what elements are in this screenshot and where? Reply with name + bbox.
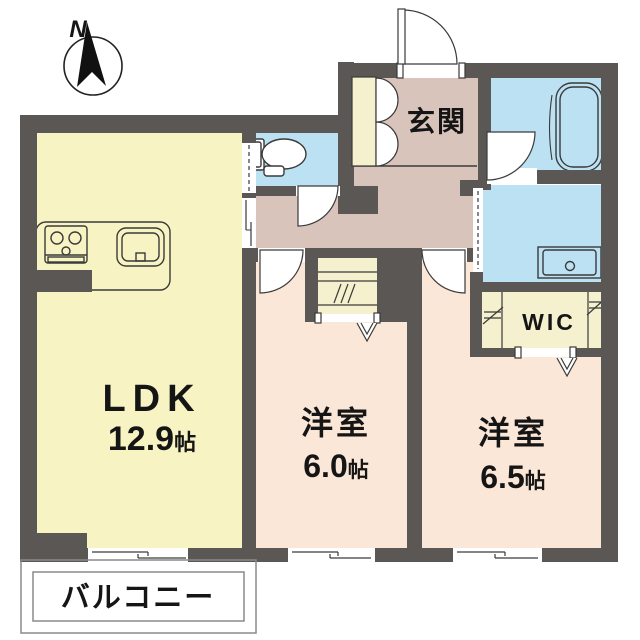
ldk-sliding-door-icon	[242, 198, 256, 248]
wall-segment	[338, 63, 397, 78]
wall-segment	[537, 170, 601, 184]
wall-segment	[20, 115, 37, 562]
washroom-sliding-door-icon	[473, 188, 483, 272]
bedroom-right-label: 洋室	[478, 415, 548, 451]
wall-segment	[338, 186, 378, 214]
wic-label: WIC	[522, 309, 576, 335]
wall-segment	[601, 63, 618, 562]
wall-segment	[305, 248, 318, 322]
wall-segment	[470, 348, 518, 357]
wall-segment	[242, 246, 256, 548]
wall-segment	[375, 548, 453, 562]
wall-segment	[20, 533, 87, 548]
genkan-label: 玄関	[407, 105, 467, 137]
wall-segment	[470, 282, 607, 292]
wall-segment	[20, 270, 92, 292]
bedroom-center-window-icon	[288, 548, 375, 562]
balcony-label: バルコニー	[61, 582, 215, 614]
floor-plan-canvas: N 玄関 LDK 12.9帖 洋室 6.0帖 洋室 6.5帖 WIC バルコニー	[0, 0, 640, 640]
washroom-floor	[483, 185, 601, 282]
ldk-floor	[37, 133, 242, 548]
compass-icon: N	[64, 16, 122, 95]
wall-segment	[573, 348, 607, 357]
ldk-open-wall-icon	[242, 143, 256, 193]
wall-segment	[20, 115, 354, 133]
wall-segment	[407, 248, 422, 548]
wall-segment	[542, 548, 618, 562]
wall-segment	[377, 248, 407, 322]
wall-segment	[242, 133, 256, 143]
compass-label: N	[69, 16, 87, 43]
wall-segment	[470, 292, 482, 357]
bedroom-center-label: 洋室	[301, 405, 371, 441]
ldk-label: LDK	[102, 378, 201, 420]
floor-plan: N 玄関 LDK 12.9帖 洋室 6.0帖 洋室 6.5帖 WIC バルコニー	[0, 0, 640, 640]
entrance-door-icon	[397, 9, 465, 78]
bedroom-right-window-icon	[453, 548, 542, 562]
wall-segment	[242, 248, 258, 262]
